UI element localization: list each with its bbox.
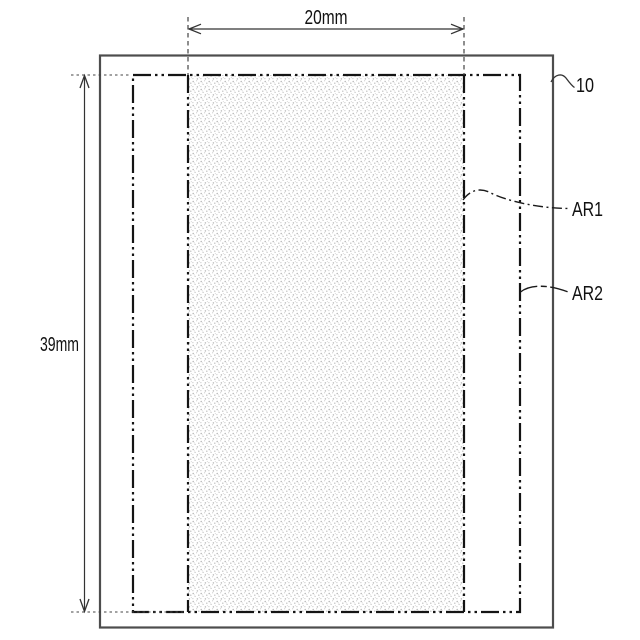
patent-figure-page: 20mm 39mm 10 AR1 AR2 (0, 0, 640, 640)
reference-labels: 10 AR1 AR2 (463, 75, 603, 305)
height-dimension: 39mm (40, 75, 186, 612)
ar1-region-fill (188, 75, 464, 612)
width-dimension: 20mm (188, 7, 464, 75)
leader-line-ar2 (521, 286, 570, 292)
height-dimension-label: 39mm (40, 334, 79, 356)
width-dimension-label: 20mm (305, 7, 348, 29)
label-substrate-10: 10 (576, 75, 594, 97)
patent-figure: 20mm 39mm 10 AR1 AR2 (0, 0, 640, 640)
label-area-ar1: AR1 (572, 199, 603, 221)
leader-line-10 (551, 75, 575, 88)
label-area-ar2: AR2 (572, 283, 603, 305)
